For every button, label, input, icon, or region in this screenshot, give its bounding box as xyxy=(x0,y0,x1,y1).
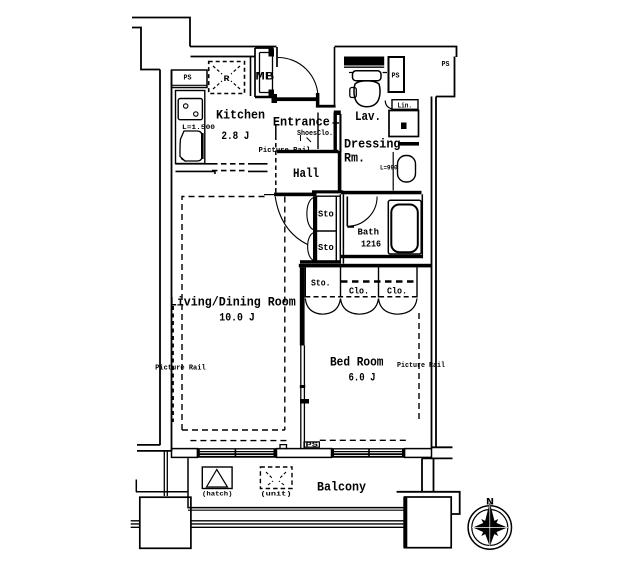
svg-text:(unit): (unit) xyxy=(261,490,292,497)
svg-text:2.8 J: 2.8 J xyxy=(221,131,249,143)
svg-text:Entrance: Entrance xyxy=(273,116,330,130)
svg-text:Living/Dining Room: Living/Dining Room xyxy=(170,296,296,310)
svg-text:Picture Rail: Picture Rail xyxy=(397,362,445,370)
svg-text:L=990: L=990 xyxy=(380,164,398,171)
svg-text:R: R xyxy=(224,75,230,84)
svg-text:PS: PS xyxy=(306,442,319,449)
svg-text:Dressing: Dressing xyxy=(344,138,401,152)
svg-text:Lav.: Lav. xyxy=(355,110,381,124)
svg-text:PS: PS xyxy=(184,75,192,83)
svg-text:Kitchen: Kitchen xyxy=(216,109,265,123)
svg-text:L=1.500: L=1.500 xyxy=(182,124,215,131)
svg-text:Bath: Bath xyxy=(358,227,380,238)
svg-text:ShoesClo.: ShoesClo. xyxy=(297,130,333,138)
svg-text:KY T.I: KY T.I xyxy=(347,60,381,67)
svg-text:Picture Rail: Picture Rail xyxy=(155,365,206,373)
svg-text:MB: MB xyxy=(256,72,275,84)
svg-text:1216: 1216 xyxy=(361,239,381,250)
svg-text:PS: PS xyxy=(442,61,450,69)
svg-text:Rm.: Rm. xyxy=(344,152,365,166)
svg-text:10.0 J: 10.0 J xyxy=(219,312,255,324)
svg-text:(hatch): (hatch) xyxy=(202,490,233,497)
svg-text:Bed Room: Bed Room xyxy=(330,355,384,369)
svg-text:Sto.: Sto. xyxy=(318,243,339,253)
svg-text:Balcony: Balcony xyxy=(317,481,366,495)
svg-text:Sto.: Sto. xyxy=(318,210,339,220)
svg-text:Clo.: Clo. xyxy=(349,287,369,297)
svg-text:Lin.: Lin. xyxy=(398,102,413,110)
svg-text:Sto.: Sto. xyxy=(311,279,331,289)
svg-text:6.0 J: 6.0 J xyxy=(349,372,376,384)
svg-text:Hall: Hall xyxy=(293,167,319,181)
svg-text:Picture Rail: Picture Rail xyxy=(259,147,311,155)
svg-text:Clo.: Clo. xyxy=(387,287,407,297)
svg-text:N: N xyxy=(486,498,494,509)
svg-text:PS: PS xyxy=(392,73,400,81)
